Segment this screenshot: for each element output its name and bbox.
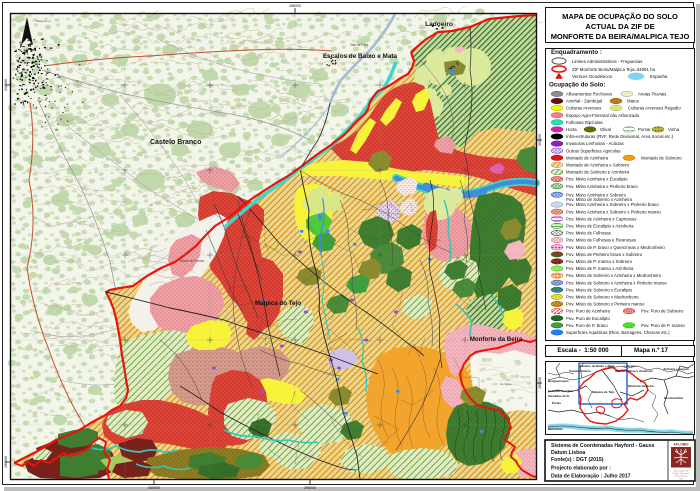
svg-text:Malpica do Tejo: Malpica do Tejo [592, 390, 614, 394]
svg-text:Projecto elaborado por :: Projecto elaborado por : [551, 466, 611, 472]
svg-text:Sul: Sul [679, 478, 683, 480]
svg-text:Cebolais de Cima: Cebolais de Cima [548, 389, 573, 393]
svg-text:Monforte da Beira: Monforte da Beira [628, 384, 654, 388]
svg-text:Perais: Perais [552, 401, 561, 405]
svg-text:Associação de: Associação de [674, 470, 689, 473]
svg-text:Zebreira e Segura: Zebreira e Segura [663, 367, 689, 371]
svg-text:Sistema de Coordenadas Hayford: Sistema de Coordenadas Hayford - Gauss [551, 443, 655, 449]
svg-text:AFLOBEI: AFLOBEI [674, 443, 689, 447]
svg-text:Produt. Florestais: Produt. Florestais [672, 472, 690, 475]
svg-text:Montalvão: Montalvão [548, 427, 563, 431]
svg-text:Fonte(s) : DGT (2015): Fonte(s) : DGT (2015) [551, 457, 604, 463]
svg-text:Benquerenças: Benquerenças [548, 379, 569, 383]
svg-text:Beira Interior: Beira Interior [675, 475, 688, 478]
svg-text:Idanha-a-Nova e Alcafozes: Idanha-a-Nova e Alcafozes [615, 369, 653, 373]
svg-text:Datum Lisboa: Datum Lisboa [551, 450, 585, 456]
svg-text:Ladoeiro: Ladoeiro [624, 364, 637, 368]
svg-text:Sarnadas de R.: Sarnadas de R. [548, 394, 570, 398]
svg-text:Data de Elaboração : Julho 201: Data de Elaboração : Julho 2017 [551, 474, 631, 480]
svg-text:Castelo Branco: Castelo Branco [569, 369, 591, 373]
svg-text:Rosmaninhal: Rosmaninhal [664, 396, 683, 400]
svg-text:Escalos de Baixo e Mata: Escalos de Baixo e Mata [580, 364, 615, 368]
